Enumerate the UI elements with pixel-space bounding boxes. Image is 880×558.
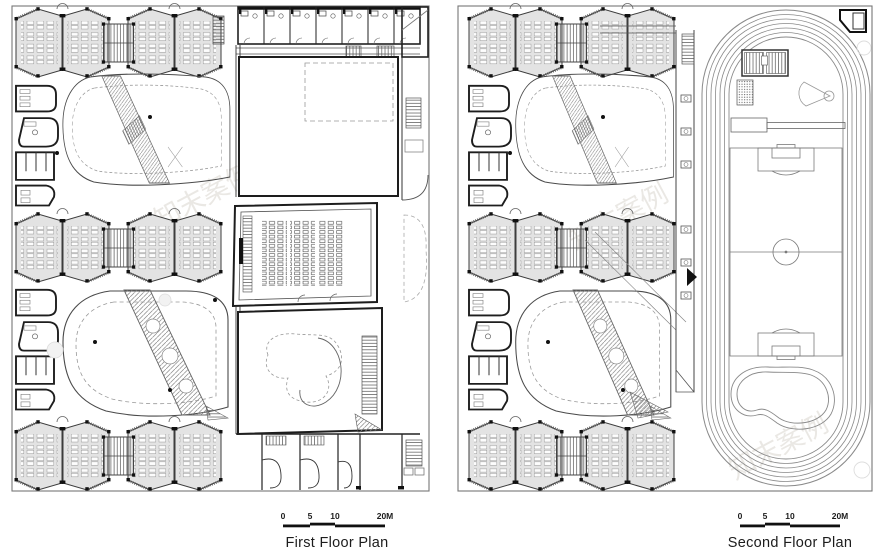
watermark-text: 知末案例 — [724, 408, 833, 485]
stair — [682, 34, 694, 64]
stair — [377, 46, 394, 57]
first-floor-scalebar: 0 5 10 20M First Floor Plan — [281, 511, 394, 551]
tree — [857, 41, 871, 55]
stair — [346, 46, 361, 57]
pavilion — [742, 50, 788, 76]
multipurpose-hall — [236, 306, 382, 434]
east-wing — [402, 7, 428, 302]
entry-structure — [840, 10, 866, 32]
seating — [262, 220, 344, 286]
first-floor-label: First Floor Plan — [285, 535, 388, 551]
stair — [406, 440, 422, 466]
floor-plans-canvas: 知末案例 知末案例 知末案例 — [0, 0, 880, 558]
stair — [266, 436, 286, 445]
second-floor-scalebar: 0 5 10 20M Second Floor Plan — [728, 511, 852, 551]
sand-pit — [737, 80, 753, 105]
tree — [47, 342, 63, 358]
scale-tick: 5 — [308, 511, 313, 521]
dorm-rooms — [238, 7, 420, 44]
scale-tick: 20M — [832, 511, 849, 521]
scale-tick: 0 — [281, 511, 286, 521]
stair — [213, 16, 224, 44]
corridor — [236, 46, 420, 57]
wall-wedge — [687, 268, 697, 286]
scale-tick: 10 — [330, 511, 340, 521]
scale-tick: 10 — [785, 511, 795, 521]
stair — [362, 336, 377, 414]
second-floor-label: Second Floor Plan — [728, 535, 852, 551]
scale-tick: 5 — [763, 511, 768, 521]
scale-tick: 0 — [738, 511, 743, 521]
gym-hall — [236, 45, 398, 197]
stair — [304, 436, 324, 445]
stair — [406, 98, 421, 128]
scale-tick: 20M — [377, 511, 394, 521]
throwing-sector — [799, 82, 834, 106]
tree — [159, 294, 171, 306]
track-infield — [730, 10, 871, 478]
first-floor-plan — [12, 4, 429, 492]
music-rooms — [236, 434, 424, 490]
auditorium — [233, 203, 377, 306]
long-jump-runway — [731, 118, 845, 132]
stage — [243, 216, 252, 292]
running-track — [702, 10, 870, 486]
tree — [854, 462, 870, 478]
soccer-field — [730, 145, 842, 360]
